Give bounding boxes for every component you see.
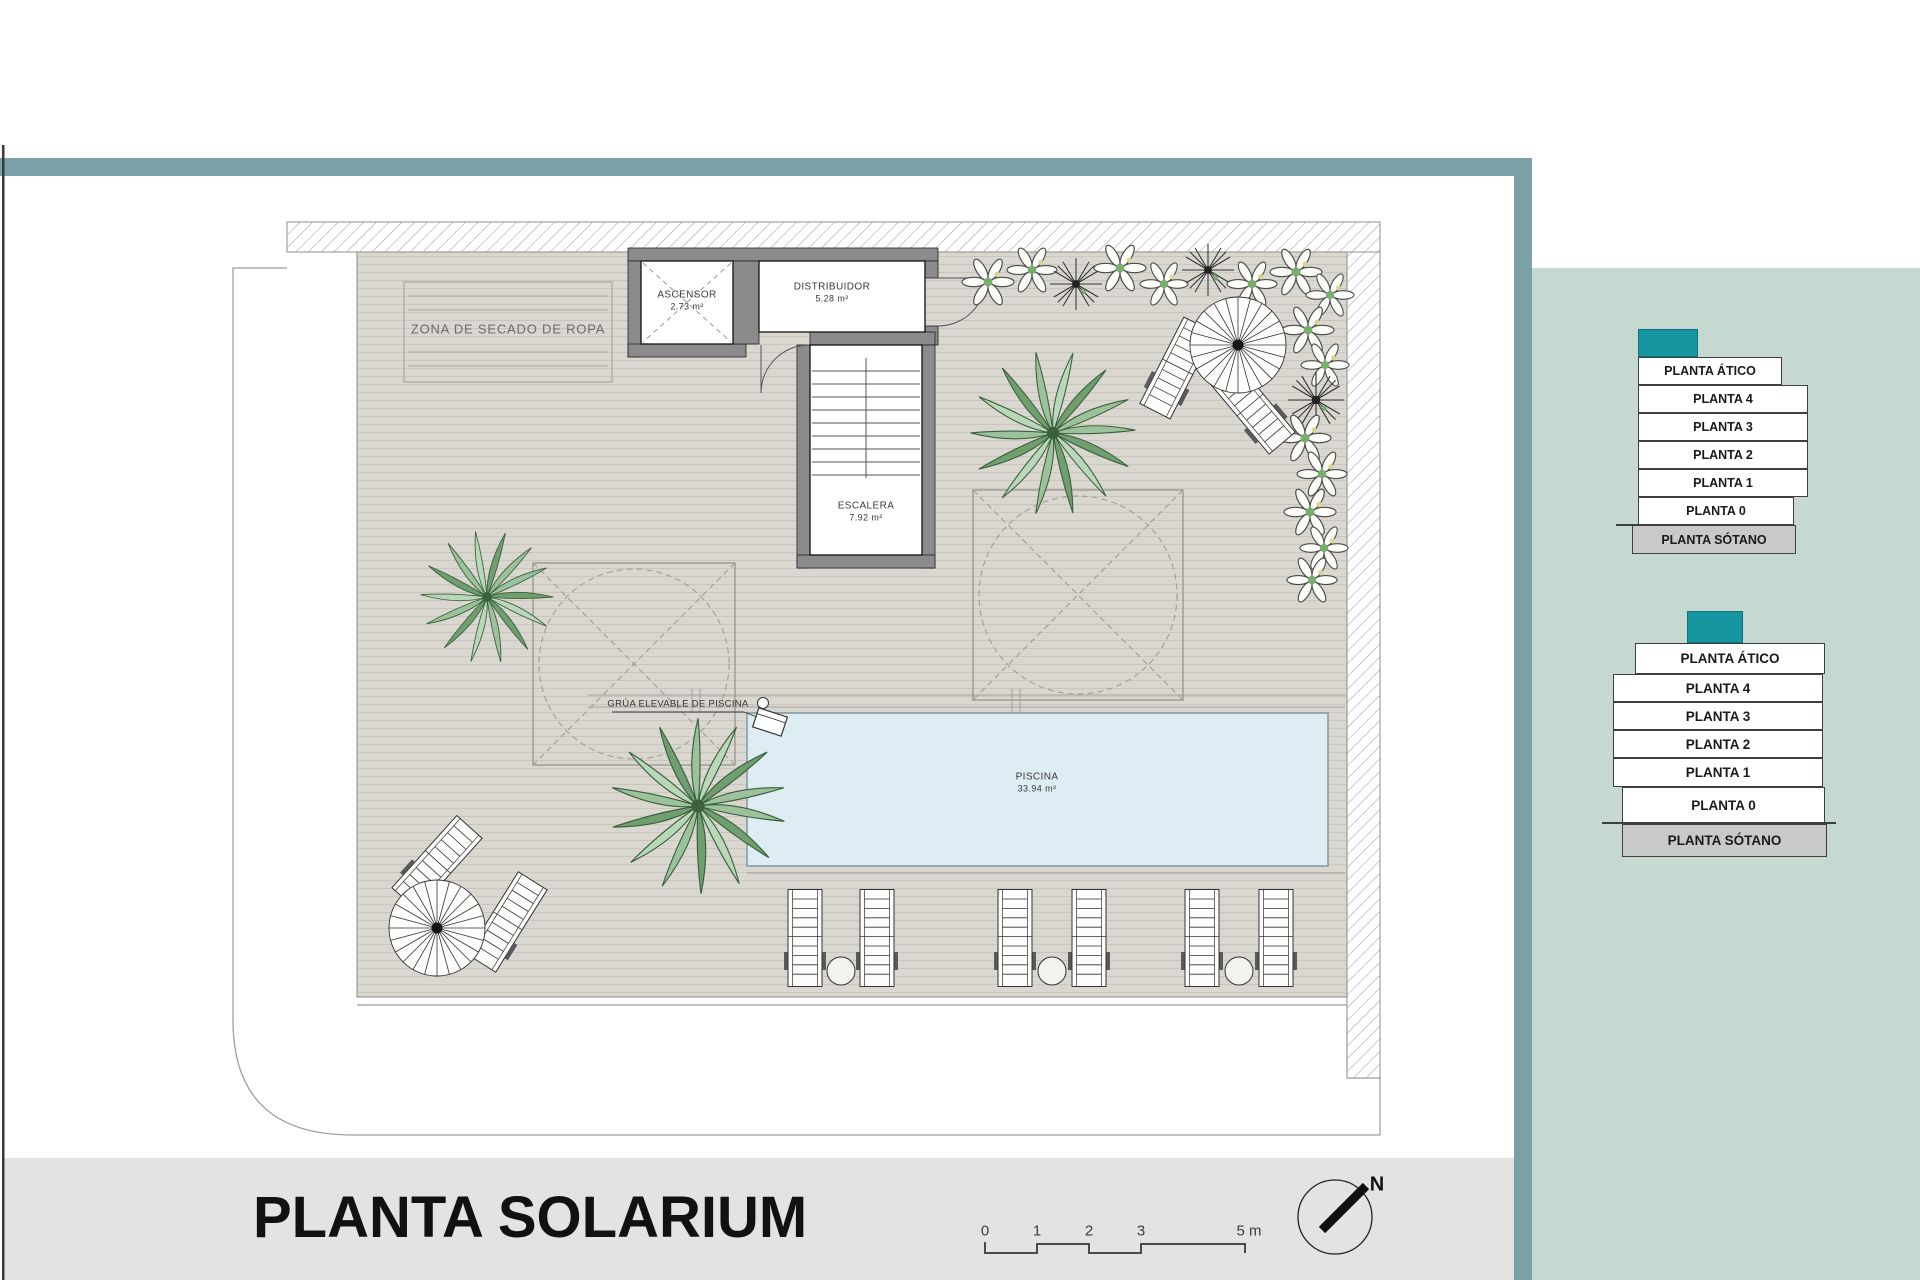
level-row: PLANTA 0 bbox=[1638, 497, 1794, 525]
pool-crane-label: GRÚA ELEVABLE DE PISCINA bbox=[607, 699, 748, 710]
level-row-basement: PLANTA SÓTANO bbox=[1622, 824, 1827, 857]
scale-tick-0: 0 bbox=[981, 1223, 989, 1240]
scale-tick-3: 3 bbox=[1137, 1223, 1145, 1240]
level-row: PLANTA 4 bbox=[1638, 385, 1808, 413]
room-label-distribuidor: DISTRIBUIDOR 5.28 m² bbox=[794, 282, 870, 305]
scale-tick-1: 1 bbox=[1033, 1223, 1041, 1240]
drying-zone-label: ZONA DE SECADO DE ROPA bbox=[411, 322, 605, 337]
scale-tick-5m: 5 m bbox=[1236, 1223, 1261, 1240]
room-label-piscina: PISCINA 33.94 m² bbox=[1016, 772, 1059, 795]
highlighted-solarium-block bbox=[1638, 329, 1698, 357]
page-title: PLANTA SOLARIUM bbox=[253, 1186, 807, 1250]
level-row-basement: PLANTA SÓTANO bbox=[1632, 525, 1796, 554]
room-label-escalera: ESCALERA 7.92 m² bbox=[838, 501, 895, 524]
room-area: 2.73 m² bbox=[657, 301, 716, 313]
highlighted-solarium-block bbox=[1687, 611, 1743, 643]
lounger-icon bbox=[1255, 890, 1297, 987]
room-label-ascensor: ASCENSOR 2.73 m² bbox=[657, 290, 716, 313]
lounger-icon bbox=[1181, 890, 1223, 987]
parasol-icon bbox=[1190, 297, 1286, 393]
lounger-icon bbox=[856, 890, 898, 987]
room-area: 7.92 m² bbox=[838, 512, 895, 524]
level-row: PLANTA 4 bbox=[1613, 674, 1823, 702]
parasol-icon bbox=[389, 880, 485, 976]
level-row: PLANTA 0 bbox=[1622, 787, 1825, 823]
teal-border-horizontal bbox=[0, 158, 1531, 176]
room-name: PISCINA bbox=[1016, 772, 1059, 784]
level-row: PLANTA 2 bbox=[1613, 730, 1823, 758]
level-row: PLANTA 3 bbox=[1638, 413, 1808, 441]
side-table-icon bbox=[1225, 957, 1253, 985]
room-name: ESCALERA bbox=[838, 501, 895, 513]
teal-border-vertical bbox=[1514, 158, 1532, 1280]
room-area: 33.94 m² bbox=[1016, 783, 1059, 795]
lounger-icon bbox=[1068, 890, 1110, 987]
level-row: PLANTA 1 bbox=[1638, 469, 1808, 497]
plan-sheet: ASCENSOR 2.73 m² DISTRIBUIDOR 5.28 m² ES… bbox=[0, 0, 1920, 1280]
level-row: PLANTA 2 bbox=[1638, 441, 1808, 469]
room-area: 5.28 m² bbox=[794, 293, 870, 305]
north-label: N bbox=[1370, 1174, 1384, 1197]
scale-tick-2: 2 bbox=[1085, 1223, 1093, 1240]
level-row: PLANTA 3 bbox=[1613, 702, 1823, 730]
room-name: DISTRIBUIDOR bbox=[794, 282, 870, 294]
side-table-icon bbox=[1038, 957, 1066, 985]
room-name: ASCENSOR bbox=[657, 290, 716, 302]
level-row: PLANTA ÁTICO bbox=[1635, 643, 1825, 674]
sheet-frame-left-line bbox=[2, 145, 5, 1280]
side-table-icon bbox=[827, 957, 855, 985]
lounger-icon bbox=[994, 890, 1036, 987]
level-row: PLANTA 1 bbox=[1613, 758, 1823, 787]
lounger-icon bbox=[784, 890, 826, 987]
floor-plan-drawing bbox=[0, 0, 1920, 1280]
level-row: PLANTA ÁTICO bbox=[1638, 357, 1782, 385]
